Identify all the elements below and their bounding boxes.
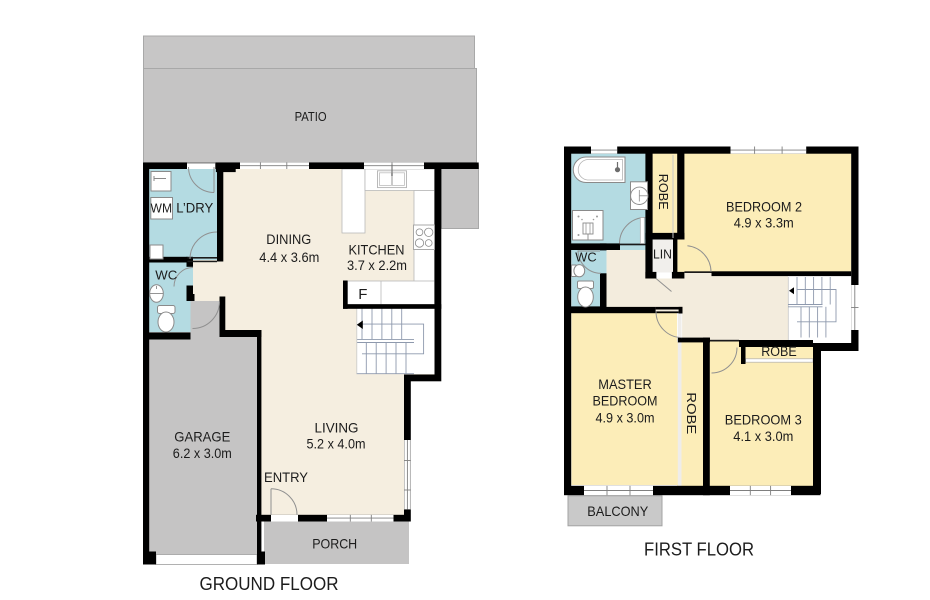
svg-text:ROBE: ROBE	[684, 392, 699, 434]
svg-text:WM: WM	[151, 201, 173, 216]
svg-text:3.7 x 2.2m: 3.7 x 2.2m	[347, 257, 407, 273]
svg-text:4.9 x 3.3m: 4.9 x 3.3m	[734, 215, 794, 231]
svg-text:4.1 x 3.0m: 4.1 x 3.0m	[733, 428, 793, 444]
svg-text:4.4 x 3.6m: 4.4 x 3.6m	[259, 249, 319, 265]
svg-text:WC: WC	[155, 268, 177, 283]
svg-text:LIVING: LIVING	[315, 420, 359, 436]
svg-text:GARAGE: GARAGE	[174, 428, 230, 444]
svg-text:5.2 x 4.0m: 5.2 x 4.0m	[307, 436, 366, 452]
svg-text:BALCONY: BALCONY	[587, 503, 649, 519]
svg-text:GROUND FLOOR: GROUND FLOOR	[200, 573, 339, 594]
svg-text:FIRST FLOOR: FIRST FLOOR	[644, 539, 754, 560]
svg-text:ROBE: ROBE	[761, 344, 797, 359]
svg-text:BEDROOM 2: BEDROOM 2	[726, 199, 802, 215]
svg-text:4.9 x 3.0m: 4.9 x 3.0m	[596, 409, 655, 425]
svg-text:PATIO: PATIO	[295, 109, 327, 124]
svg-text:PORCH: PORCH	[312, 536, 357, 552]
svg-text:WC: WC	[575, 249, 596, 264]
svg-text:F: F	[358, 286, 367, 303]
svg-text:BEDROOM 3: BEDROOM 3	[725, 412, 802, 428]
svg-text:LIN: LIN	[653, 246, 672, 261]
svg-text:ROBE: ROBE	[656, 174, 671, 210]
svg-text:ENTRY: ENTRY	[264, 469, 309, 485]
svg-text:KITCHEN: KITCHEN	[349, 241, 405, 257]
svg-text:MASTER: MASTER	[598, 376, 652, 392]
svg-text:6.2 x 3.0m: 6.2 x 3.0m	[173, 445, 232, 461]
svg-text:DINING: DINING	[266, 231, 311, 247]
svg-text:L’DRY: L’DRY	[176, 200, 214, 216]
svg-text:BEDROOM: BEDROOM	[593, 392, 658, 408]
